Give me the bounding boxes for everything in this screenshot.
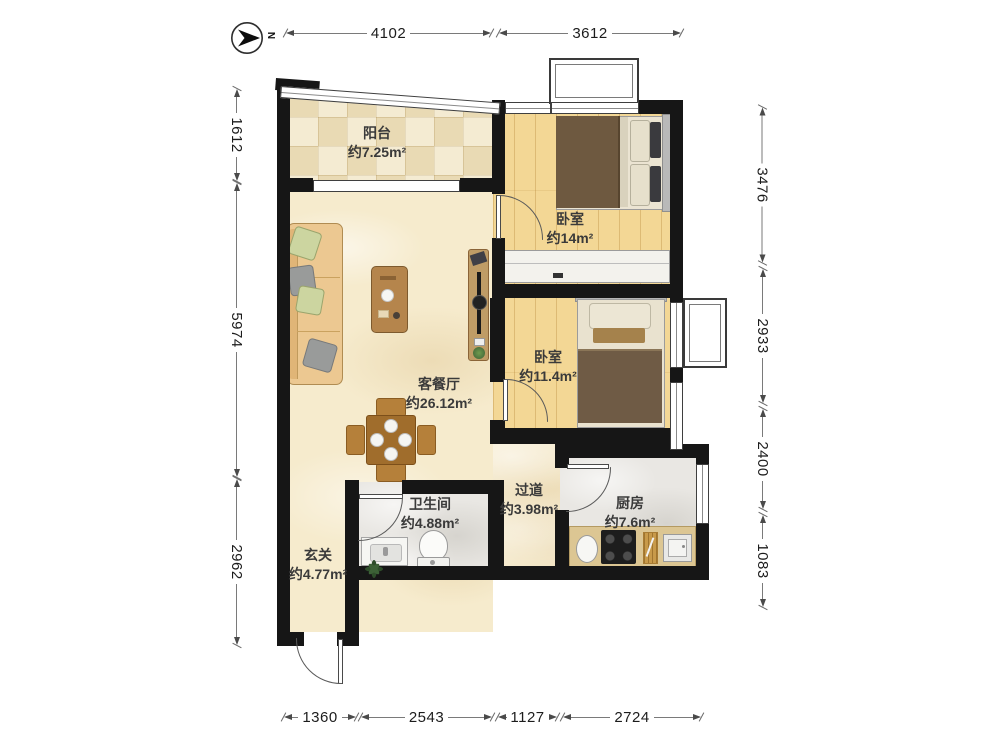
dim-label: 2724 (610, 709, 653, 726)
bed-pillow (630, 164, 650, 206)
dim-line (237, 97, 238, 113)
dim-right-4: 1083 (755, 514, 771, 608)
dim-top-2: 3612 (498, 25, 682, 41)
kitchen-sink-square (663, 534, 692, 562)
room-name: 厨房 (605, 494, 656, 513)
dim-label: 5974 (229, 308, 246, 351)
wardrobe-handle (553, 273, 563, 278)
sink-drain (682, 545, 685, 548)
room-name: 阳台 (348, 124, 406, 143)
dim-bottom-3: 1127 (497, 709, 558, 725)
plant-icon (473, 347, 485, 359)
plate (398, 433, 412, 447)
dim-line (763, 481, 764, 501)
bedroom-mid-window (670, 382, 683, 450)
dim-label: 2933 (755, 314, 772, 357)
dining-chair (417, 425, 436, 455)
toilet (417, 530, 449, 570)
kitchen-counter (569, 526, 696, 567)
wall-segment (490, 298, 505, 382)
wall-segment (492, 284, 683, 298)
bed-fold (593, 328, 645, 343)
wall-segment (490, 428, 683, 444)
bed-cushion (650, 166, 661, 202)
cutting-board (643, 532, 658, 564)
bay-window-right (683, 298, 727, 368)
coffee-table (371, 266, 408, 333)
room-name: 卧室 (519, 348, 577, 367)
dim-label: 4102 (367, 25, 410, 42)
room-name: 玄关 (289, 546, 347, 565)
wall-segment (460, 178, 505, 192)
dim-line (763, 358, 764, 395)
knife-icon (646, 537, 654, 556)
dim-label: 1360 (298, 709, 341, 726)
coffee-table-item (378, 310, 389, 318)
compass: N (230, 21, 266, 62)
room-area: 约7.25m² (348, 143, 406, 162)
bed-top (556, 114, 670, 210)
wall-segment (555, 444, 709, 458)
room-area: 约7.6m² (605, 513, 656, 532)
dim-line (369, 717, 405, 718)
dim-left-1: 1612 (229, 88, 245, 182)
wall-segment (670, 100, 683, 302)
room-label-living: 客餐厅 约26.12m² (406, 375, 472, 413)
dim-right-3: 2400 (755, 408, 771, 510)
sofa-pillow (295, 285, 325, 316)
bed-pillow (630, 120, 650, 162)
sofa (287, 223, 343, 385)
tv-decor (470, 251, 488, 266)
dim-line (507, 33, 568, 34)
dim-label: 1083 (755, 539, 772, 582)
plate (384, 419, 398, 433)
dim-label: 1127 (506, 709, 548, 726)
sink-basin (668, 539, 687, 557)
room-area: 约4.77m² (289, 565, 347, 584)
north-label: N (265, 32, 276, 39)
dim-label: 3612 (568, 25, 611, 42)
wall-segment (492, 238, 505, 286)
dim-line (237, 352, 238, 469)
sofa-seam (297, 331, 340, 332)
room-area: 约3.98m² (500, 500, 558, 519)
wall-segment (345, 566, 709, 580)
bed-cushion (650, 122, 661, 158)
kitchen-window (696, 464, 709, 524)
dim-line (762, 116, 763, 164)
bed-pillow (589, 303, 651, 329)
room-label-bedroom-mid: 卧室 约11.4m² (519, 348, 577, 386)
bay-window-top (549, 58, 639, 104)
dim-line (763, 583, 764, 599)
dim-left-2: 5974 (229, 182, 245, 478)
tv-cabinet (468, 249, 489, 361)
dim-line (654, 717, 693, 718)
dim-line (763, 523, 764, 539)
bay-window-right-band (670, 302, 683, 368)
dining-chair (346, 425, 365, 455)
room-name: 过道 (500, 481, 558, 500)
dim-label: 2400 (755, 437, 772, 480)
room-name: 卫生间 (401, 495, 459, 514)
bay-window-frame (689, 304, 721, 362)
room-area: 约26.12m² (406, 394, 472, 413)
wall-segment (696, 456, 709, 464)
dim-line (762, 207, 763, 255)
bed-mid (575, 292, 665, 432)
dim-line (571, 717, 610, 718)
room-label-hallway: 过道 约3.98m² (500, 481, 558, 519)
room-label-bedroom-top: 卧室 约14m² (547, 210, 594, 248)
dim-top-1: 4102 (285, 25, 492, 41)
tv-item (474, 338, 485, 346)
bedroom-top-window (505, 102, 551, 114)
bed-sheet (620, 117, 628, 207)
plant-icon (363, 559, 385, 579)
floor-plan: 阳台 约7.25m² 卧室 约14m² 卧室 约11.4m² 客餐厅 约26.1… (0, 0, 1000, 750)
bed-blanket (556, 116, 620, 208)
room-area: 约14m² (547, 229, 594, 248)
plate (370, 433, 384, 447)
wall-segment (696, 524, 709, 572)
dim-bottom-4: 2724 (562, 709, 702, 725)
room-label-kitchen: 厨房 约7.6m² (605, 494, 656, 532)
room-label-bathroom: 卫生间 约4.88m² (401, 495, 459, 533)
dim-line (237, 157, 238, 173)
cup (381, 289, 394, 302)
kitchen-sink-oval (576, 535, 598, 563)
bed-blanket (578, 349, 662, 423)
dim-line (237, 191, 238, 308)
wall-segment (277, 178, 313, 192)
room-label-balcony: 阳台 约7.25m² (348, 124, 406, 162)
dim-left-3: 2962 (229, 478, 245, 646)
dim-line (763, 277, 764, 314)
room-name: 卧室 (547, 210, 594, 229)
bay-window-frame (555, 64, 633, 98)
dim-line (410, 33, 483, 34)
dim-line (763, 417, 764, 437)
coffee-table-item (380, 276, 396, 280)
dim-right-2: 2933 (755, 268, 771, 404)
plate (384, 447, 398, 461)
faucet-icon (383, 547, 388, 556)
dim-bottom-2: 2543 (360, 709, 493, 725)
dim-line (237, 584, 238, 637)
room-area: 约11.4m² (519, 367, 577, 386)
dim-line (294, 33, 367, 34)
dim-label: 2543 (405, 709, 448, 726)
bay-window-top-band (551, 102, 639, 114)
wardrobe-seam (501, 263, 669, 264)
dim-right-1: 3476 (755, 107, 771, 264)
wardrobe (500, 250, 670, 283)
dim-bottom-1: 1360 (283, 709, 357, 725)
room-area: 约4.88m² (401, 514, 459, 533)
stove (601, 530, 636, 564)
room-name: 客餐厅 (406, 375, 472, 394)
north-arrow-icon (230, 21, 266, 57)
balcony-sliding-door (313, 180, 460, 192)
dim-label: 1612 (229, 113, 246, 156)
tv-speaker (472, 295, 487, 310)
dim-label: 3476 (754, 163, 771, 206)
coffee-table-item (393, 312, 400, 319)
toilet-button (430, 560, 435, 565)
wall-segment (670, 366, 683, 382)
dim-line (612, 33, 673, 34)
dim-line (237, 487, 238, 540)
room-label-entry: 玄关 约4.77m² (289, 546, 347, 584)
dim-label: 2962 (229, 540, 246, 583)
dim-line (448, 717, 484, 718)
